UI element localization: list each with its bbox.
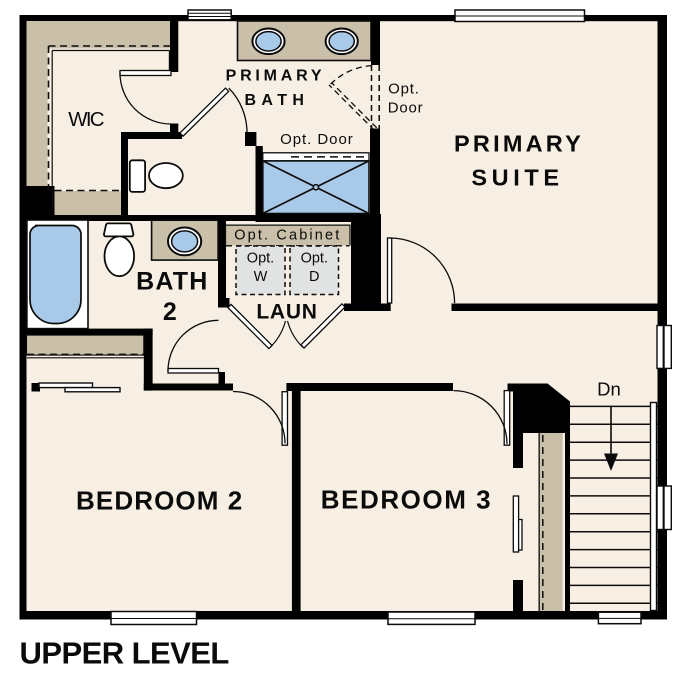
svg-text:BEDROOM 2: BEDROOM 2 (76, 485, 243, 515)
svg-text:Opt. Door: Opt. Door (280, 131, 354, 148)
svg-text:Opt.: Opt. (301, 251, 328, 267)
svg-text:Door: Door (388, 100, 424, 117)
svg-text:Opt.: Opt. (388, 80, 420, 97)
svg-text:WIC: WIC (68, 108, 104, 131)
svg-text:W: W (254, 269, 268, 285)
svg-text:Dn: Dn (597, 379, 621, 400)
svg-text:D: D (309, 269, 319, 285)
svg-text:PRIMARY: PRIMARY (226, 68, 326, 85)
svg-text:SUITE: SUITE (471, 164, 563, 190)
svg-text:PRIMARY: PRIMARY (454, 131, 584, 157)
svg-text:BEDROOM 3: BEDROOM 3 (321, 485, 492, 515)
svg-text:LAUN: LAUN (256, 301, 317, 324)
svg-text:BATH: BATH (244, 92, 309, 109)
svg-text:2: 2 (163, 298, 177, 326)
svg-text:BATH: BATH (136, 268, 208, 296)
svg-text:Opt. Cabinet: Opt. Cabinet (234, 228, 341, 244)
svg-text:Opt.: Opt. (247, 251, 274, 267)
svg-text:UPPER LEVEL: UPPER LEVEL (20, 635, 229, 670)
